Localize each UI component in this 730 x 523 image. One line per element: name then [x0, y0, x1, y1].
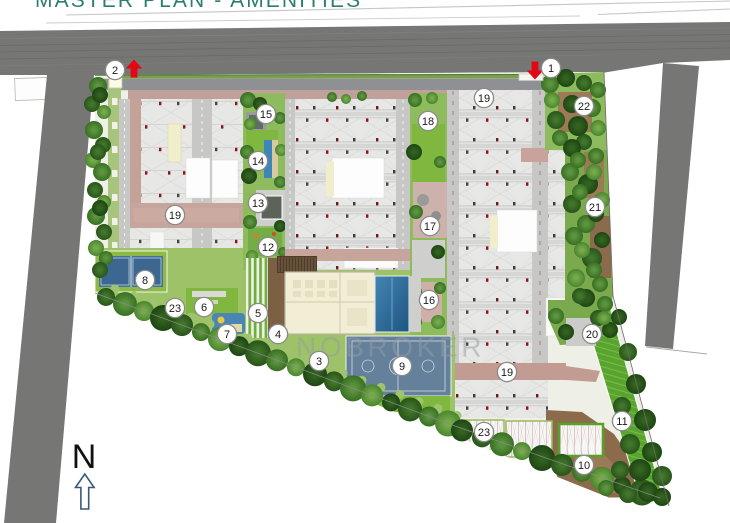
svg-text:4: 4 [275, 329, 281, 341]
svg-text:21: 21 [589, 202, 601, 214]
svg-text:N: N [72, 438, 97, 476]
svg-text:5: 5 [255, 308, 261, 320]
svg-text:19: 19 [501, 367, 513, 379]
svg-text:14: 14 [252, 156, 264, 168]
svg-text:18: 18 [422, 116, 434, 128]
svg-text:9: 9 [399, 361, 405, 373]
svg-text:19: 19 [478, 93, 490, 105]
svg-text:23: 23 [169, 303, 181, 315]
svg-text:6: 6 [201, 302, 207, 314]
svg-text:16: 16 [423, 295, 435, 307]
svg-text:3: 3 [316, 356, 322, 368]
svg-text:22: 22 [578, 101, 590, 113]
svg-text:15: 15 [260, 109, 272, 121]
svg-text:1: 1 [548, 63, 554, 75]
svg-text:12: 12 [262, 242, 274, 254]
svg-text:13: 13 [252, 198, 264, 210]
svg-text:11: 11 [616, 416, 627, 428]
svg-text:7: 7 [224, 329, 230, 341]
svg-text:2: 2 [112, 65, 118, 77]
svg-text:17: 17 [424, 221, 436, 233]
svg-text:20: 20 [586, 329, 598, 341]
svg-text:10: 10 [578, 460, 590, 472]
svg-text:23: 23 [478, 427, 490, 439]
svg-text:19: 19 [169, 210, 181, 222]
svg-text:8: 8 [142, 275, 148, 287]
